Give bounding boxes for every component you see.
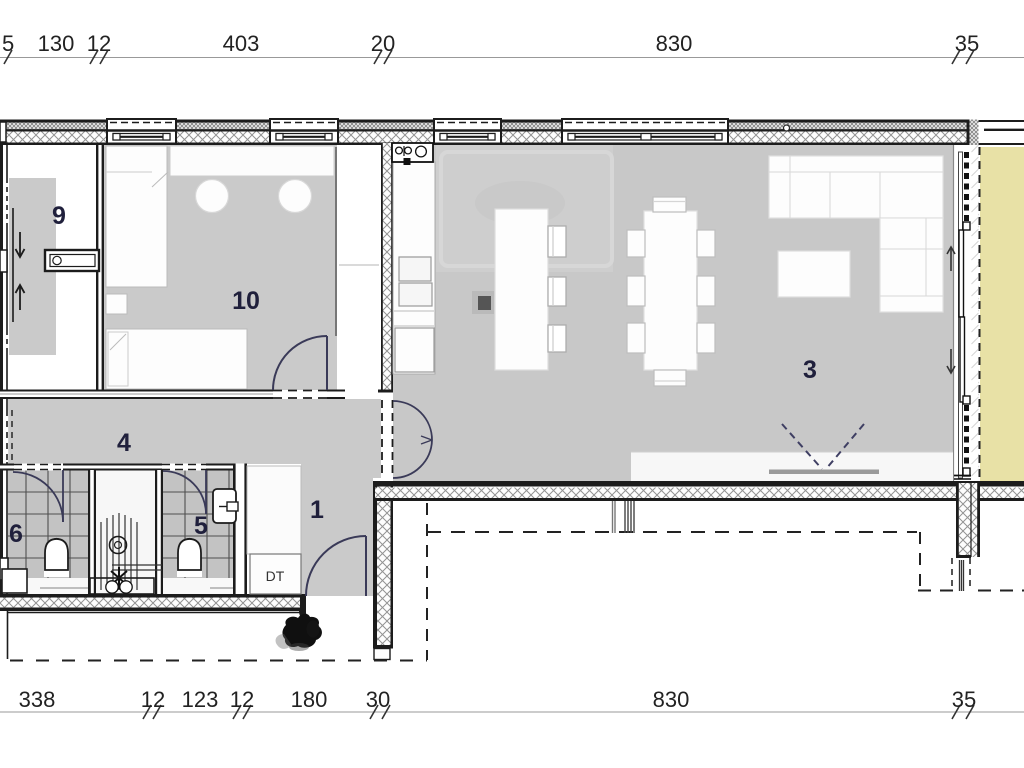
svg-text:403: 403 xyxy=(223,31,260,56)
svg-text:5: 5 xyxy=(2,31,14,56)
svg-text:6: 6 xyxy=(9,520,23,548)
svg-text:5: 5 xyxy=(194,512,208,540)
svg-text:30: 30 xyxy=(366,687,390,712)
svg-text:DT: DT xyxy=(266,568,285,584)
svg-text:12: 12 xyxy=(141,687,165,712)
svg-text:180: 180 xyxy=(291,687,328,712)
svg-text:9: 9 xyxy=(52,202,66,230)
svg-text:4: 4 xyxy=(117,429,131,457)
svg-text:830: 830 xyxy=(653,687,690,712)
svg-text:3: 3 xyxy=(803,356,817,384)
svg-text:1: 1 xyxy=(310,496,324,524)
svg-text:20: 20 xyxy=(371,31,395,56)
svg-text:10: 10 xyxy=(232,287,260,315)
svg-text:12: 12 xyxy=(87,31,111,56)
svg-text:830: 830 xyxy=(656,31,693,56)
svg-text:338: 338 xyxy=(19,687,56,712)
svg-text:12: 12 xyxy=(230,687,254,712)
svg-text:123: 123 xyxy=(182,687,219,712)
svg-text:35: 35 xyxy=(955,31,979,56)
svg-text:35: 35 xyxy=(952,687,976,712)
svg-text:130: 130 xyxy=(38,31,75,56)
